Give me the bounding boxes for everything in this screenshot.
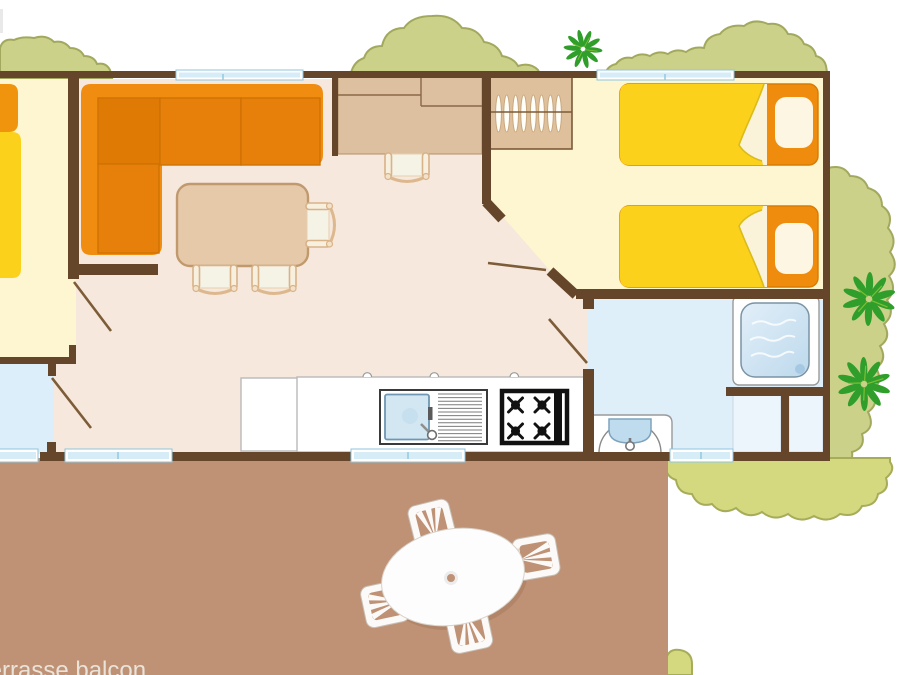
svg-text:terrasse balcon: terrasse balcon (0, 657, 146, 675)
